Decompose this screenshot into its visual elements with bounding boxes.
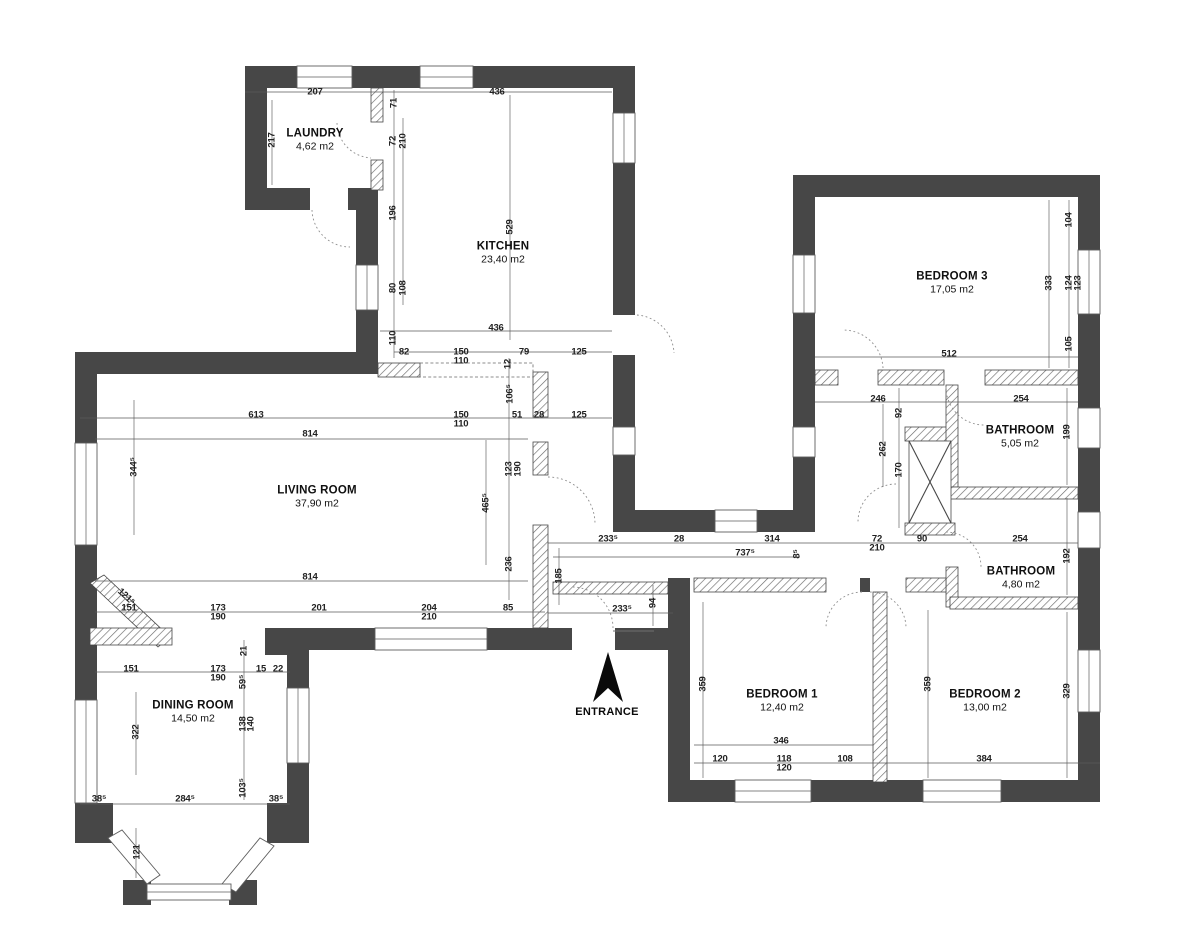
dimension-label: 125 [571, 410, 586, 420]
dimension-label: 192 [1062, 548, 1072, 563]
dimension-label: 82 [399, 347, 409, 357]
dimension-label: 314 [764, 534, 779, 544]
room-name: DINING ROOM [152, 699, 233, 712]
room-label-living-room: LIVING ROOM37,90 m2 [277, 484, 357, 509]
room-label-bedroom-3: BEDROOM 317,05 m2 [916, 270, 987, 295]
dimension-label: 51 [512, 410, 522, 420]
dimension-label: 346 [773, 736, 788, 746]
dimension-label: 15 [256, 664, 266, 674]
room-label-bedroom-2: BEDROOM 213,00 m2 [949, 688, 1020, 713]
dimension-label: 190 [210, 673, 225, 683]
dimension-label: 262 [878, 441, 888, 456]
dimension-label: 217 [267, 132, 277, 147]
dimension-label: 108 [837, 754, 852, 764]
dimension-label: 210 [869, 543, 884, 553]
dimension-label: 104 [1064, 212, 1074, 227]
dimension-label: 233⁵ [612, 604, 632, 614]
dimension-label: 814 [302, 429, 317, 439]
dimension-label: 512 [941, 349, 956, 359]
dimension-label: 254 [1012, 534, 1027, 544]
dimension-label: 110 [454, 356, 469, 366]
dimension-label: 814 [302, 572, 317, 582]
room-area: 4,80 m2 [987, 579, 1055, 591]
dimension-label: 120 [776, 763, 791, 773]
dimension-label: 120 [712, 754, 727, 764]
dimension-label: 185 [554, 568, 564, 583]
dimension-label: 103⁵ [238, 778, 248, 798]
dimension-label: 71 [389, 98, 399, 108]
dimension-label: 125 [571, 347, 586, 357]
room-name: KITCHEN [477, 240, 530, 253]
dimension-label: 436 [488, 323, 503, 333]
room-name: BEDROOM 1 [746, 688, 817, 701]
room-area: 12,40 m2 [746, 702, 817, 714]
shaft [909, 441, 951, 523]
low-partition [420, 363, 533, 377]
dimension-label: 123 [1073, 275, 1083, 290]
dimension-label: 38⁵ [269, 794, 283, 804]
hall-door-arc [858, 484, 896, 522]
dimension-label: 210 [421, 612, 436, 622]
room-area: 14,50 m2 [152, 713, 233, 725]
dimension-label: 196 [388, 205, 398, 220]
dimension-label: 94 [648, 598, 658, 608]
dimension-label: 85 [503, 603, 513, 613]
bedroom1-door-arc [826, 592, 862, 628]
room-label-bathroom-2: BATHROOM4,80 m2 [987, 565, 1055, 590]
dimension-label: 121 [132, 844, 142, 859]
dimension-label: 210 [398, 133, 408, 148]
room-name: BATHROOM [987, 565, 1055, 578]
dimension-label: 21 [239, 646, 249, 656]
floor-plan: LAUNDRY4,62 m2KITCHEN23,40 m2LIVING ROOM… [0, 0, 1200, 945]
room-area: 37,90 m2 [277, 498, 357, 510]
room-label-laundry: LAUNDRY4,62 m2 [286, 127, 343, 152]
room-area: 17,05 m2 [916, 284, 987, 296]
dimension-label: 359 [923, 676, 933, 691]
dimension-label: 90 [917, 534, 927, 544]
dimension-label: 465⁵ [481, 493, 491, 513]
dimension-label: 329 [1062, 683, 1072, 698]
bedroom3-door-arc [843, 330, 883, 368]
dimension-label: 79 [519, 347, 529, 357]
room-label-kitchen: KITCHEN23,40 m2 [477, 240, 530, 265]
dimension-label: 190 [513, 461, 523, 476]
dimension-label: 201 [311, 603, 326, 613]
room-label-bedroom-1: BEDROOM 112,40 m2 [746, 688, 817, 713]
dimension-label: 284⁵ [175, 794, 195, 804]
dimension-label: 359 [698, 676, 708, 691]
room-name: LIVING ROOM [277, 484, 357, 497]
dimension-label: 108 [398, 280, 408, 295]
dimension-label: 233⁵ [598, 534, 618, 544]
dimension-label: 254 [1013, 394, 1028, 404]
dimension-label: 384 [976, 754, 991, 764]
dimension-label: 59⁵ [238, 675, 248, 689]
room-name: LAUNDRY [286, 127, 343, 140]
dimension-label: 333 [1044, 275, 1054, 290]
dimension-label: 28 [674, 534, 684, 544]
room-name: BEDROOM 2 [949, 688, 1020, 701]
dimension-label: 190 [210, 612, 225, 622]
dimension-label: 92 [894, 408, 904, 418]
room-label-bathroom-1: BATHROOM5,05 m2 [986, 424, 1054, 449]
dimension-label: 613 [248, 410, 263, 420]
room-name: BEDROOM 3 [916, 270, 987, 283]
dimension-label: 737⁵ [735, 548, 755, 558]
entrance-label: ENTRANCE [575, 706, 639, 718]
dimension-label: 236 [504, 556, 514, 571]
dimension-label: 436 [489, 87, 504, 97]
dimension-label: 22 [273, 664, 283, 674]
room-label-dining-room: DINING ROOM14,50 m2 [152, 699, 233, 724]
dimension-label: 151 [123, 664, 138, 674]
bathroom2-door-arc [946, 532, 981, 567]
kitchen-door-arc [637, 315, 674, 353]
dimension-label: 8⁵ [792, 549, 802, 558]
dimension-label: 140 [246, 716, 256, 731]
room-name: BATHROOM [986, 424, 1054, 437]
living-door-arc [548, 477, 595, 524]
dimension-label: 38⁵ [92, 794, 106, 804]
room-area: 4,62 m2 [286, 141, 343, 153]
dimension-label: 170 [894, 462, 904, 477]
dimension-label: 110 [388, 331, 398, 346]
room-area: 5,05 m2 [986, 438, 1054, 450]
laundry-lower-door-arc [312, 210, 350, 247]
dimension-label: 207 [307, 87, 322, 97]
dimension-label: 344⁵ [129, 457, 139, 477]
dimension-label: 105 [1064, 336, 1074, 351]
dimension-label: 529 [505, 219, 515, 234]
dimension-label: 199 [1062, 424, 1072, 439]
room-area: 23,40 m2 [477, 254, 530, 266]
dimension-label: 106⁵ [505, 384, 515, 404]
room-area: 13,00 m2 [949, 702, 1020, 714]
dimension-label: 110 [454, 419, 469, 429]
dimension-label: 322 [131, 724, 141, 739]
entrance-arrow-icon [593, 652, 623, 702]
dimension-label: 246 [870, 394, 885, 404]
dimension-label: 28 [534, 410, 544, 420]
dimension-label: 12 [503, 359, 513, 369]
